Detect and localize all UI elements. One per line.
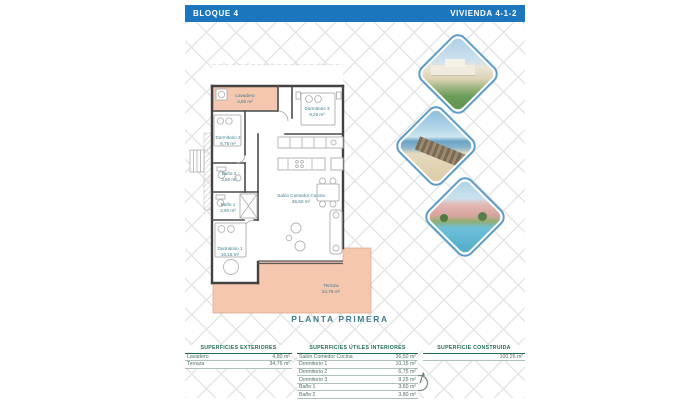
row-value: 6,75 m² xyxy=(398,369,416,375)
bano2-label: Baño 2 xyxy=(222,171,237,176)
row-label: Baño 2 xyxy=(299,392,315,398)
dormitorio3-label: Dormitorio 3 xyxy=(304,106,329,111)
table-row: Terraza 34,76 m² xyxy=(185,361,292,369)
floor-plan: Lavadero 4,80 m² Dormitorio 3 9,25 m² Do… xyxy=(185,45,400,335)
photo-clip xyxy=(420,36,496,112)
table-row: Baño 2 3,80 m² xyxy=(297,391,418,399)
table-row: 100,26 m² xyxy=(423,354,525,362)
terraza-area: 34,76 m² xyxy=(322,289,341,294)
dormitorio1-area: 10,15 m² xyxy=(221,252,240,257)
row-value: 3,60 m² xyxy=(398,384,416,390)
boardwalk-shape xyxy=(415,136,474,175)
bano2-area: 3,80 m² xyxy=(221,177,237,182)
block-title: BLOQUE 4 xyxy=(193,9,239,18)
table-exteriores: SUPERFICIES EXTERIORES Lavadero 4,80 m² … xyxy=(185,345,292,369)
table-construida: SUPERFICIE CONSTRUIDA 100,26 m² xyxy=(423,345,525,361)
row-label: Dormitorio 2 xyxy=(299,369,327,375)
row-value: 100,26 m² xyxy=(500,354,523,360)
row-label: Dormitorio 1 xyxy=(299,361,327,367)
bano1-label: Baño 1 xyxy=(221,202,236,207)
row-value: 34,76 m² xyxy=(270,361,290,367)
dormitorio2-label: Dormitorio 2 xyxy=(215,135,240,140)
row-label: Salón Comedor Cocina xyxy=(299,354,353,360)
row-label: Terraza xyxy=(187,361,204,367)
table-row: Salón Comedor Cocina 36,50 m² xyxy=(297,354,418,362)
lavadero-area: 4,80 m² xyxy=(237,99,253,104)
dormitorio1-label: Dormitorio 1 xyxy=(217,246,242,251)
table-row: Dormitorio 1 10,15 m² xyxy=(297,361,418,369)
floor-title: PLANTA PRIMERA xyxy=(291,314,388,324)
table-row: Lavadero 4,80 m² xyxy=(185,354,292,362)
resort-scene xyxy=(427,179,503,255)
row-value: 4,80 m² xyxy=(272,354,290,360)
salon-area: 36,50 m² xyxy=(292,199,311,204)
dormitorio2-area: 6,75 m² xyxy=(220,141,236,146)
palm-shape xyxy=(478,212,487,221)
dormitorio3-area: 9,25 m² xyxy=(309,112,325,117)
table-row: Baño 1 3,60 m² xyxy=(297,384,418,392)
row-value: 36,50 m² xyxy=(396,354,416,360)
row-value: 9,25 m² xyxy=(398,377,416,383)
terraza-label: Terraza xyxy=(323,283,339,288)
dwelling-title: VIVIENDA 4-1-2 xyxy=(450,9,517,18)
salon-label: Salón Comedor Cocina xyxy=(277,193,325,198)
beach-scene xyxy=(398,108,474,184)
table-title: SUPERFICIES EXTERIORES xyxy=(185,345,292,354)
table-interiores: SUPERFICIES ÚTILES INTERIORES Salón Come… xyxy=(297,345,418,399)
photo-clip xyxy=(398,108,474,184)
resort-pool-photo xyxy=(421,173,509,261)
row-label: Lavadero xyxy=(187,354,209,360)
table-title: SUPERFICIES ÚTILES INTERIORES xyxy=(297,345,418,354)
lavadero-label: Lavadero xyxy=(235,93,255,98)
building-shape xyxy=(445,59,465,67)
brochure-page: BLOQUE 4 VIVIENDA 4-1-2 xyxy=(185,5,525,398)
palm-shape xyxy=(440,214,448,222)
bano1-area: 3,60 m² xyxy=(220,208,236,213)
row-label: Baño 1 xyxy=(299,384,315,390)
header-bar: BLOQUE 4 VIVIENDA 4-1-2 xyxy=(185,5,525,22)
table-row: Dormitorio 3 9,25 m² xyxy=(297,376,418,384)
residential-render-photo xyxy=(414,30,502,118)
render-scene xyxy=(420,36,496,112)
exterior-stairs xyxy=(190,150,204,172)
table-title: SUPERFICIE CONSTRUIDA xyxy=(423,345,525,354)
photo-clip xyxy=(427,179,503,255)
row-value: 3,80 m² xyxy=(398,392,416,398)
row-label: Dormitorio 3 xyxy=(299,377,327,383)
table-row: Dormitorio 2 6,75 m² xyxy=(297,369,418,377)
row-value: 10,15 m² xyxy=(396,361,416,367)
